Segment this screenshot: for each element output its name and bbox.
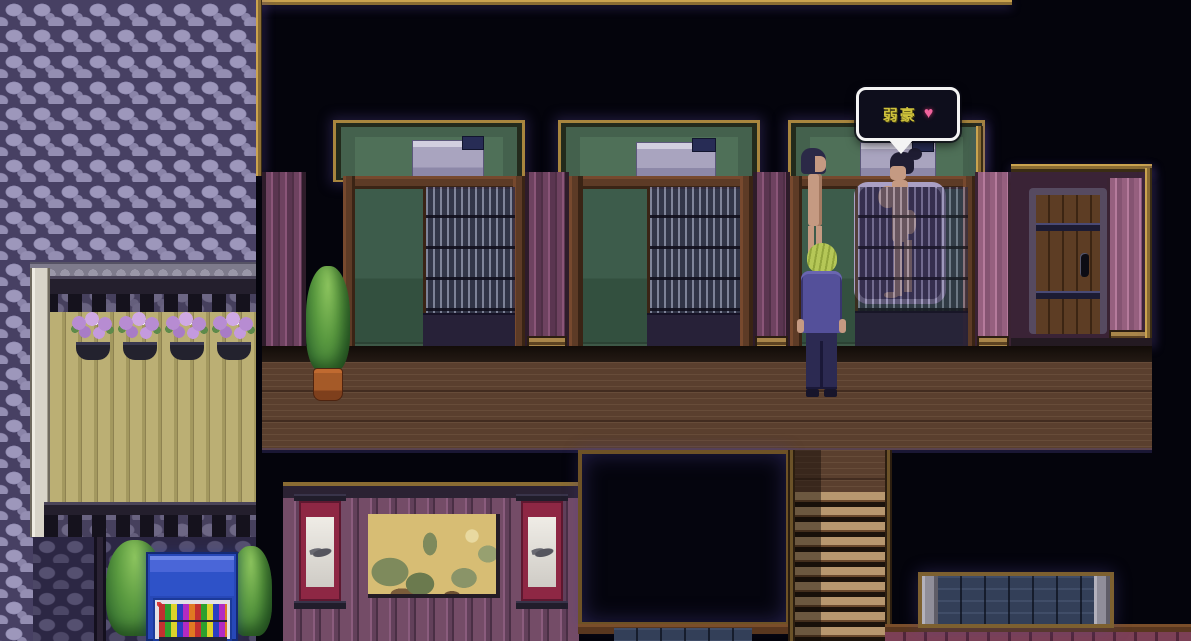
wooden-door[interactable]	[1036, 195, 1100, 334]
shoji-screen-3[interactable]	[855, 187, 968, 311]
stall-jamb	[740, 176, 753, 362]
bottle-row	[159, 622, 227, 641]
man-torso	[808, 174, 822, 226]
fence-bottom-dentils	[44, 515, 256, 537]
wing-roof-trim	[1011, 164, 1152, 172]
roof-trim-connector	[976, 126, 983, 172]
building-roof-trim	[256, 0, 1012, 5]
game-viewport: 弱豪 ♥	[0, 0, 1191, 641]
wing-right-trim	[1145, 168, 1152, 348]
scroll-rod	[516, 494, 568, 501]
vending-machine-top	[150, 556, 234, 596]
name-bubble: 弱豪 ♥	[856, 87, 960, 157]
hanging-scroll-right[interactable]	[519, 494, 565, 612]
stair-shadow	[795, 450, 821, 641]
heater-cap-icon	[692, 138, 716, 152]
player-shoe	[824, 389, 837, 397]
name-bubble-box: 弱豪 ♥	[856, 87, 960, 141]
vending-machine-display	[153, 598, 232, 641]
staircase[interactable]	[795, 450, 885, 641]
landscape-painting[interactable]	[368, 514, 500, 598]
wooden-deck[interactable]	[262, 362, 1152, 450]
npc-man-sprite[interactable]	[799, 148, 833, 254]
potted-plant	[302, 266, 354, 402]
player-pants-seam	[820, 341, 823, 389]
npc-name-label: 弱豪	[883, 104, 917, 125]
bath-stall-1	[343, 176, 525, 362]
flower-cluster	[211, 312, 256, 346]
flower-pot	[170, 342, 204, 360]
heart-icon: ♥	[924, 105, 934, 123]
plant-pot	[313, 368, 343, 401]
scroll-rod	[516, 601, 568, 609]
player-hand	[839, 319, 846, 333]
corridor-pillar-mid2	[753, 172, 790, 362]
woman-face	[890, 166, 906, 180]
stone-pillar	[922, 576, 938, 624]
flower-cluster	[70, 312, 116, 346]
scroll-rod	[294, 494, 346, 501]
deck-shadow-band	[262, 346, 1152, 362]
pit-bottom-stone	[614, 628, 752, 641]
door-band	[1036, 291, 1100, 299]
building-left-trim	[256, 0, 262, 176]
player-jacket	[801, 271, 842, 333]
bottle-row	[159, 604, 227, 624]
vending-machine[interactable]	[146, 552, 238, 641]
flower-pot	[123, 342, 157, 360]
fence-pillar	[30, 268, 50, 537]
corridor-pillar-mid1	[525, 172, 569, 362]
stair-rail-right	[885, 450, 892, 641]
flower-cluster	[117, 312, 163, 346]
hanging-scroll-left[interactable]	[297, 494, 343, 612]
shoji-screen-1[interactable]	[423, 187, 515, 313]
stone-pillar	[1094, 576, 1110, 624]
plant-leaves	[306, 266, 350, 372]
lower-floor-pit	[578, 450, 790, 626]
door-handle-icon[interactable]	[1080, 253, 1089, 277]
man-face	[815, 156, 826, 172]
bluestone-wall	[938, 576, 1094, 624]
player-hand	[797, 319, 804, 333]
fence-top-beam	[44, 276, 256, 294]
stair-rail-left	[788, 450, 795, 641]
wing-wall-panel	[1107, 178, 1145, 338]
flower-pot	[217, 342, 251, 360]
shoji-screen-2[interactable]	[647, 187, 740, 313]
scroll-body	[521, 501, 563, 601]
scroll-rod	[294, 601, 346, 609]
door-band	[1036, 223, 1100, 231]
bath-stall-2	[569, 176, 753, 362]
flower-pot	[76, 342, 110, 360]
pointer-down-icon	[888, 139, 914, 154]
player-sprite[interactable]	[795, 243, 847, 399]
player-hair	[807, 243, 837, 273]
yard-post	[94, 537, 106, 641]
player-shoe	[806, 389, 819, 397]
scroll-body	[299, 501, 341, 601]
lower-maroon-panels	[885, 632, 1191, 641]
heater-cap-icon	[462, 136, 484, 150]
corridor-pillar-right	[975, 172, 1011, 362]
lower-wall-frame	[918, 572, 1114, 628]
gallery-wall	[283, 482, 579, 641]
stall-jamb	[569, 176, 583, 362]
fence-bottom-beam	[44, 502, 256, 515]
fence-dentils	[44, 294, 256, 312]
flower-cluster	[164, 312, 210, 346]
